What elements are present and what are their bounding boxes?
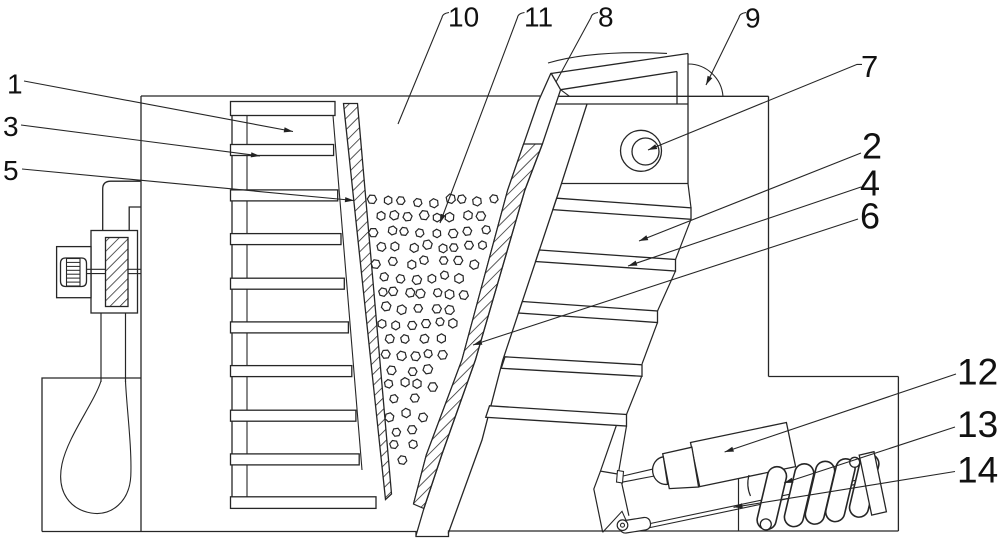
svg-text:11: 11: [524, 2, 553, 33]
svg-text:10: 10: [448, 2, 479, 33]
svg-text:3: 3: [3, 111, 19, 142]
svg-text:9: 9: [745, 3, 761, 34]
svg-text:14: 14: [957, 450, 998, 491]
svg-text:8: 8: [598, 2, 614, 33]
svg-text:2: 2: [862, 126, 882, 167]
svg-text:5: 5: [3, 155, 19, 186]
svg-text:7: 7: [861, 49, 878, 84]
svg-text:1: 1: [7, 69, 23, 100]
svg-text:6: 6: [860, 196, 880, 237]
svg-text:12: 12: [957, 352, 998, 393]
svg-text:13: 13: [957, 404, 998, 445]
